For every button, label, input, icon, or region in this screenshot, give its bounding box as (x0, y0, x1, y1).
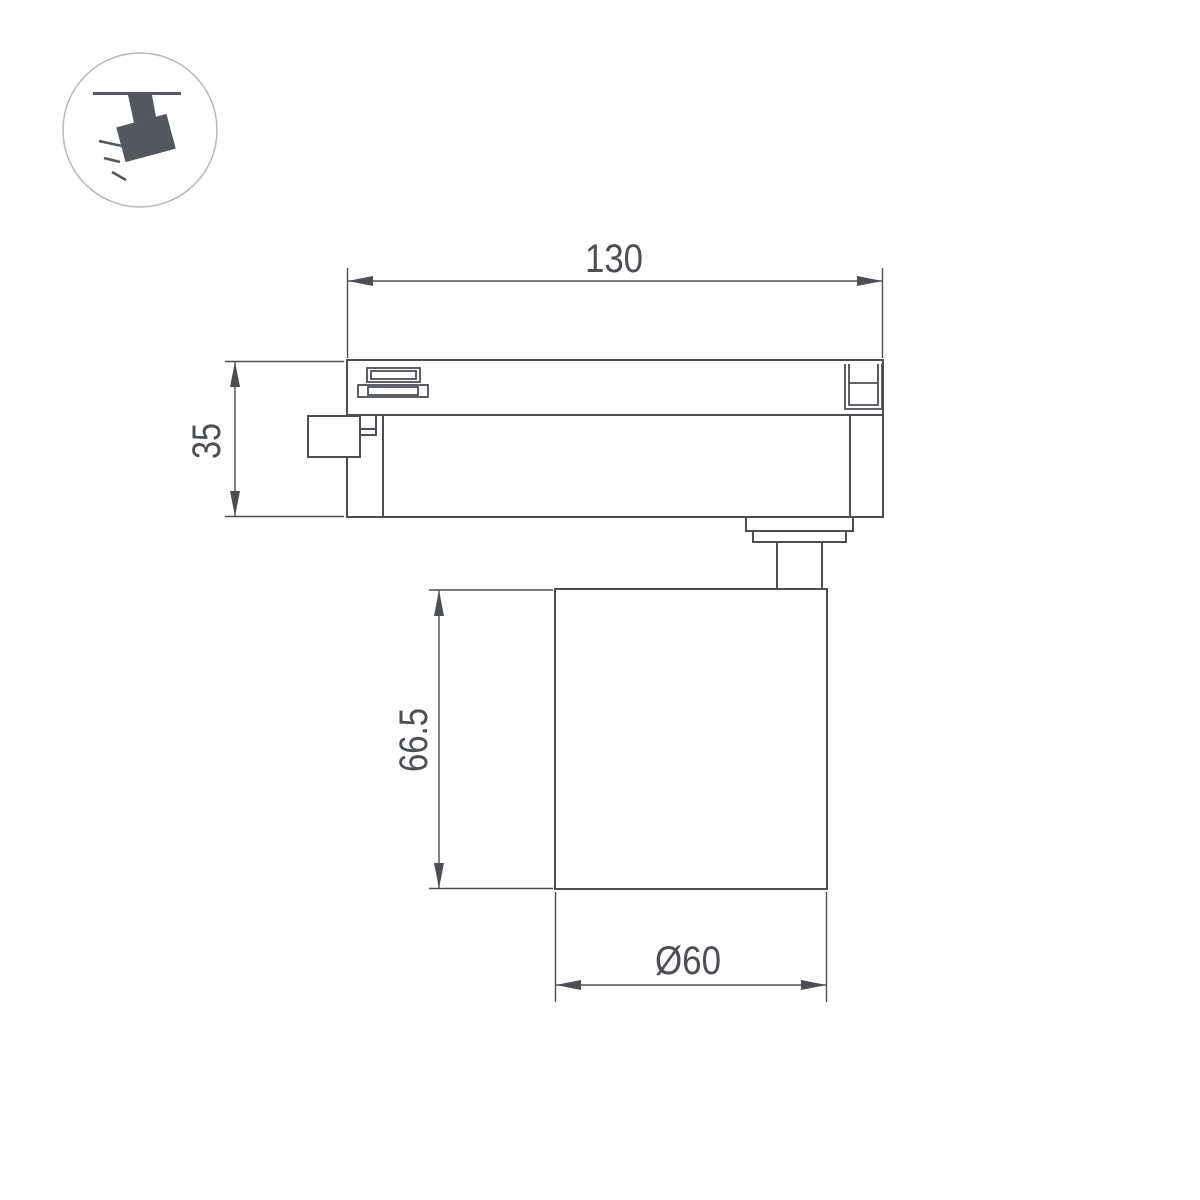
track-adapter-view (308, 360, 883, 589)
arrowhead-right (801, 980, 827, 990)
clamp-bracket (845, 364, 882, 409)
arrowhead-bottom (434, 863, 444, 889)
adapter-outline (347, 360, 883, 517)
technical-drawing-page: 130 35 66.5 Ø60 (0, 0, 1200, 1200)
dim-track-width-label: 130 (585, 237, 643, 281)
swivel-mount (746, 517, 853, 589)
drawing-canvas: 130 35 66.5 Ø60 (0, 0, 1200, 1200)
mount-plate-upper (746, 517, 853, 531)
dim-lamp-height-label: 66.5 (392, 708, 436, 772)
dim-lamp-height: 66.5 (392, 590, 553, 889)
track-contacts (358, 368, 428, 397)
arrowhead-left (348, 276, 374, 286)
arrowhead-top (230, 362, 240, 388)
mount-plate-lower (753, 531, 846, 542)
dim-track-width: 130 (348, 237, 883, 358)
contact-lower-inner (368, 387, 418, 395)
arrowhead-left (556, 980, 582, 990)
contact-upper-inner (371, 371, 416, 379)
lever-knob (308, 416, 360, 457)
mount-neck (777, 542, 822, 589)
lamp-body-outline (555, 589, 827, 889)
dim-track-height-label: 35 (185, 423, 229, 459)
dim-lamp-diameter-label: Ø60 (655, 939, 721, 983)
arrowhead-bottom (230, 491, 240, 517)
locking-lever (308, 415, 376, 457)
arrowhead-right (857, 276, 883, 286)
badge-icon (63, 53, 217, 207)
arrowhead-top (434, 590, 444, 616)
lever-tab (360, 415, 376, 429)
dim-lamp-diameter: Ø60 (556, 892, 827, 1002)
lever-tab-step (360, 429, 376, 435)
